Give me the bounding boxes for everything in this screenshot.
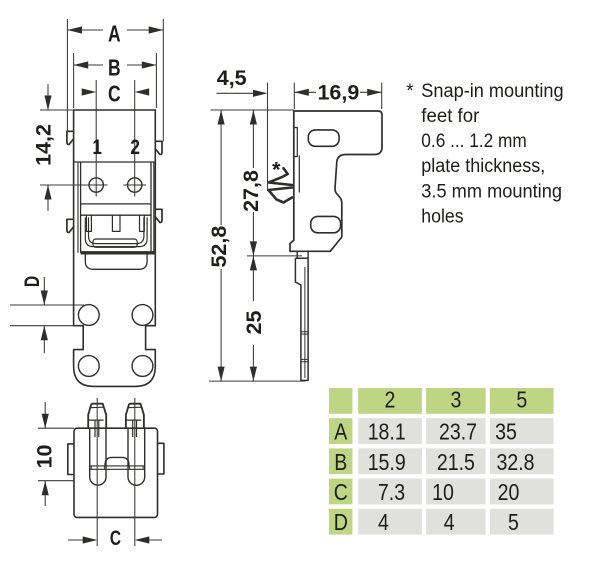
svg-text:A: A bbox=[334, 419, 348, 445]
svg-text:52,8: 52,8 bbox=[207, 226, 231, 268]
svg-text:D: D bbox=[19, 276, 43, 287]
svg-text:7.3: 7.3 bbox=[378, 480, 405, 506]
svg-text:B: B bbox=[108, 56, 121, 81]
svg-text:14,2: 14,2 bbox=[32, 124, 56, 166]
svg-text:3: 3 bbox=[450, 387, 461, 413]
svg-text:D: D bbox=[334, 510, 348, 536]
svg-text:4: 4 bbox=[378, 510, 389, 536]
svg-text:20: 20 bbox=[498, 480, 520, 506]
svg-text:*: * bbox=[406, 81, 414, 102]
svg-text:C: C bbox=[110, 525, 121, 549]
svg-text:25: 25 bbox=[242, 311, 266, 335]
svg-text:15.9: 15.9 bbox=[368, 449, 406, 475]
svg-text:2: 2 bbox=[130, 135, 140, 159]
svg-text:0.6 ... 1.2 mm: 0.6 ... 1.2 mm bbox=[421, 131, 527, 152]
svg-text:3.5 mm mounting: 3.5 mm mounting bbox=[421, 181, 562, 202]
svg-text:*: * bbox=[272, 158, 281, 182]
svg-text:A: A bbox=[108, 22, 121, 47]
svg-text:C: C bbox=[334, 480, 348, 506]
svg-text:23.7: 23.7 bbox=[439, 419, 477, 445]
svg-text:4: 4 bbox=[444, 510, 455, 536]
svg-text:feet for: feet for bbox=[421, 106, 480, 127]
svg-text:1: 1 bbox=[92, 135, 102, 159]
svg-text:16,9: 16,9 bbox=[317, 81, 359, 105]
svg-text:35: 35 bbox=[495, 419, 517, 445]
svg-text:B: B bbox=[334, 449, 347, 475]
svg-text:4,5: 4,5 bbox=[217, 66, 247, 90]
svg-text:plate thickness,: plate thickness, bbox=[421, 156, 545, 177]
svg-text:21.5: 21.5 bbox=[437, 449, 475, 475]
svg-text:18.1: 18.1 bbox=[368, 419, 406, 445]
svg-text:5: 5 bbox=[516, 387, 527, 413]
svg-text:holes: holes bbox=[421, 206, 463, 227]
svg-text:5: 5 bbox=[508, 510, 519, 536]
svg-text:27,8: 27,8 bbox=[239, 170, 263, 212]
svg-text:10: 10 bbox=[432, 480, 454, 506]
svg-text:Snap-in mounting: Snap-in mounting bbox=[421, 81, 563, 102]
svg-text:32.8: 32.8 bbox=[496, 449, 534, 475]
svg-text:10: 10 bbox=[33, 445, 57, 469]
svg-text:2: 2 bbox=[385, 387, 396, 413]
svg-text:C: C bbox=[108, 82, 121, 107]
